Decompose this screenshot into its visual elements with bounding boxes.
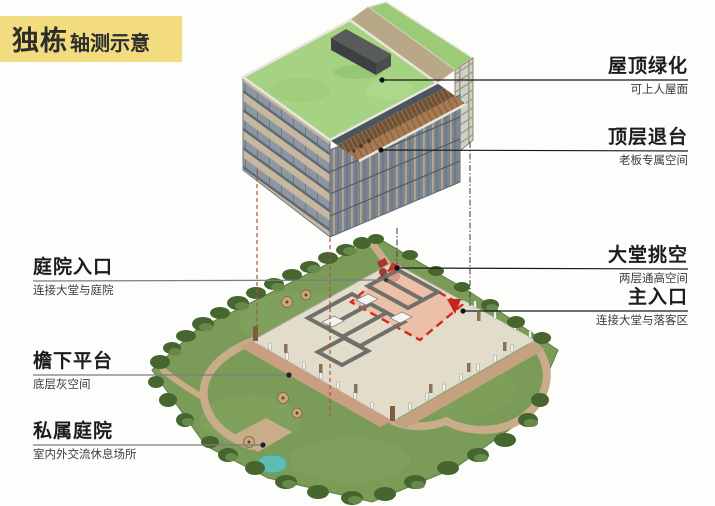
- label-heading: 顶层退台: [498, 127, 688, 149]
- title-main: 独栋: [12, 28, 68, 55]
- label-subtitle: 连接大堂与落客区: [498, 314, 688, 328]
- label-subtitle: 两层通高空间: [498, 272, 688, 286]
- title-box: 独栋轴测示意: [0, 16, 182, 62]
- label-top-setback: 顶层退台 老板专属空间: [498, 127, 688, 168]
- label-heading: 庭院入口: [33, 257, 243, 279]
- label-subtitle: 老板专属空间: [498, 154, 688, 168]
- label-heading: 私属庭院: [33, 421, 243, 443]
- title-sub: 轴测示意: [70, 33, 150, 55]
- label-private-courtyard: 私属庭院 室内外交流休息场所: [33, 421, 243, 462]
- label-subtitle: 可上人屋面: [498, 83, 688, 97]
- label-subtitle: 室内外交流休息场所: [33, 448, 243, 462]
- label-lobby-void: 大堂挑空 两层通高空间: [498, 245, 688, 286]
- label-subtitle: 连接大堂与庭院: [33, 284, 243, 298]
- label-roof-greening: 屋顶绿化 可上人屋面: [498, 56, 688, 97]
- label-heading: 大堂挑空: [498, 245, 688, 267]
- corner-pillar: [390, 406, 395, 421]
- label-heading: 檐下平台: [33, 351, 243, 373]
- building-axon: [243, 2, 473, 237]
- label-main-entrance: 主入口 连接大堂与落客区: [498, 287, 688, 328]
- label-heading: 主入口: [498, 287, 688, 309]
- label-courtyard-entrance: 庭院入口 连接大堂与庭院: [33, 257, 243, 298]
- west-pillar: [253, 326, 258, 341]
- label-heading: 屋顶绿化: [498, 56, 688, 78]
- label-subtitle: 底层灰空间: [33, 378, 243, 392]
- diagram-canvas: 独栋轴测示意 屋顶绿化 可上人屋面 顶层退台 老板专属空间 大堂挑空 两层通高空…: [0, 0, 715, 506]
- label-eave-platform: 檐下平台 底层灰空间: [33, 351, 243, 392]
